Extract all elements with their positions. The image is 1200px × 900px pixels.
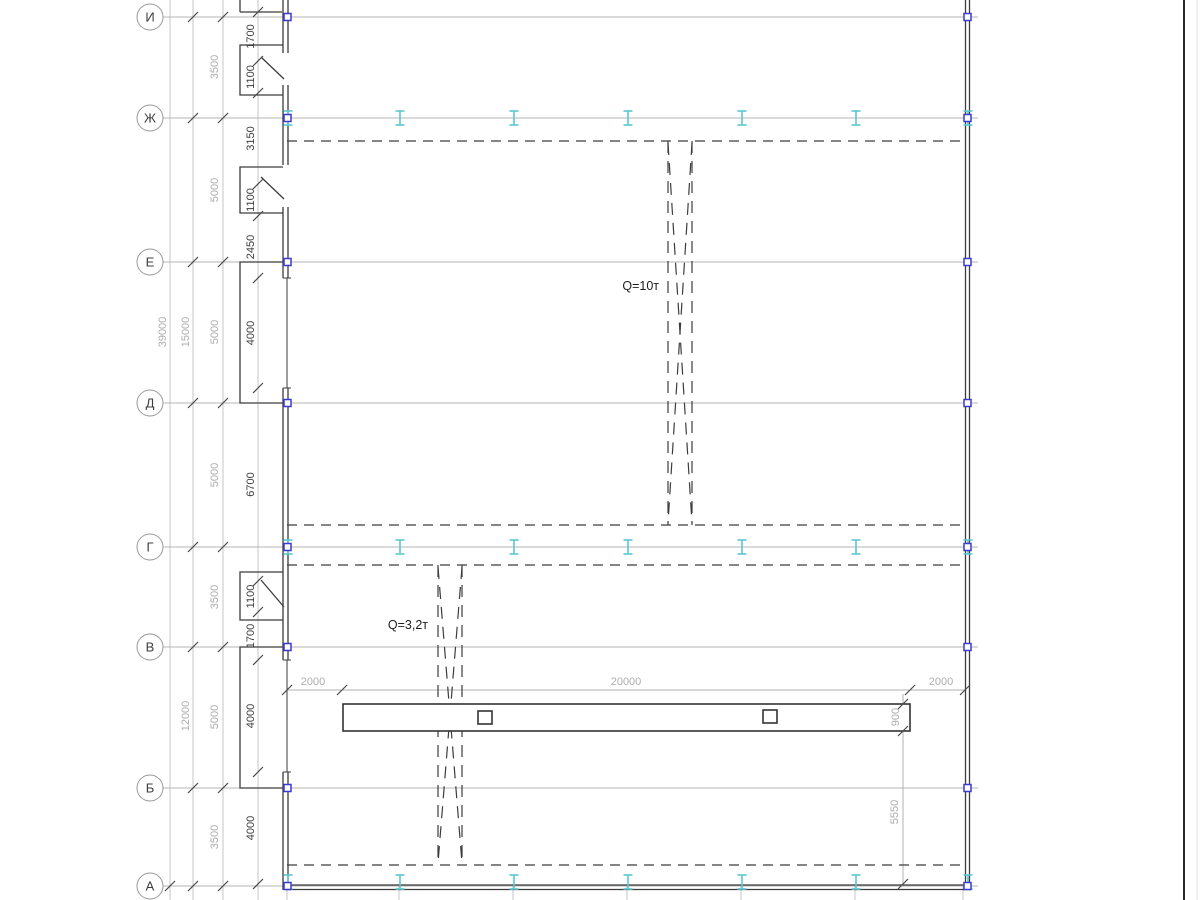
column-marker [284, 259, 291, 266]
axis-label: И [145, 10, 154, 25]
dim-label: 4000 [245, 816, 257, 840]
column-marker [284, 400, 291, 407]
axis-label: Е [146, 255, 155, 270]
dim-label: Q=3,2т [388, 618, 428, 632]
axis-label: В [146, 640, 155, 655]
dim-label: 6700 [245, 472, 257, 496]
column-marker [964, 115, 971, 122]
dim-label: 5550 [889, 800, 901, 824]
dim-label: 4000 [245, 321, 257, 345]
column-marker [284, 544, 291, 551]
dim-label: 15000 [180, 317, 192, 348]
column-marker [284, 115, 291, 122]
dim-label: 5000 [209, 705, 221, 729]
monorail-trolley-1 [478, 711, 492, 724]
dim-label: 1700 [245, 624, 257, 648]
dim-label: Q=10т [622, 279, 659, 293]
column-marker [964, 14, 971, 21]
column-marker [964, 400, 971, 407]
steel-columns [284, 111, 973, 889]
dim-label: 5000 [209, 463, 221, 487]
dim-label: 900 [890, 708, 902, 726]
steel-column-icon [624, 875, 633, 889]
dim-label: 2450 [245, 235, 257, 259]
dim-label: 2000 [301, 676, 325, 688]
dim-label: 1100 [245, 188, 257, 212]
dim-label: 3500 [209, 825, 221, 849]
dim-label: 1100 [245, 65, 257, 89]
dim-label: 3500 [209, 55, 221, 79]
steel-column-icon [396, 875, 405, 889]
crane-runway-lines [287, 141, 965, 865]
dim-label: 2000 [929, 676, 953, 688]
dim-label: 5000 [209, 178, 221, 202]
niche-3-door-leaf [261, 580, 284, 607]
axis-label: Ж [144, 111, 156, 126]
axis-label: А [146, 879, 155, 894]
walls [240, 0, 971, 890]
column-marker [964, 644, 971, 651]
dim-label: 3150 [245, 126, 257, 150]
axis-center-lines [164, 17, 979, 886]
column-marker [284, 644, 291, 651]
cad-plan-canvas: ИЖЕДГВБА 3500500050005000350050003500150… [0, 0, 1200, 900]
column-marker [284, 785, 291, 792]
dim-label: 20000 [611, 676, 642, 688]
dim-label: 5000 [209, 320, 221, 344]
steel-column-icon [738, 875, 747, 889]
column-markers [284, 14, 971, 890]
monorail-beam [343, 704, 910, 731]
niche-top-cut [240, 0, 282, 12]
dim-label: 3500 [209, 585, 221, 609]
monorail-trolley-2 [763, 710, 777, 723]
dim-label: 12000 [180, 701, 192, 732]
dim-label: 39000 [157, 317, 169, 348]
monorail-beam-body [343, 704, 910, 731]
dim-label: 1700 [245, 24, 257, 48]
axis-label: Г [146, 540, 153, 555]
grid-lines [170, 0, 963, 900]
dimension-ticks [165, 7, 970, 891]
column-marker [964, 785, 971, 792]
dim-label: 1100 [245, 585, 257, 609]
column-marker [964, 544, 971, 551]
axis-label: Б [146, 781, 155, 796]
axis-bubbles: ИЖЕДГВБА [137, 4, 163, 899]
steel-column-icon [852, 875, 861, 889]
sheet-frame [1184, 0, 1197, 900]
column-marker [284, 14, 291, 21]
column-marker [284, 883, 291, 890]
steel-column-icon [510, 875, 519, 889]
crane-10t-outline [668, 141, 692, 525]
niche-1-door-leaf [261, 57, 284, 79]
axis-label: Д [146, 396, 155, 411]
column-marker [964, 883, 971, 890]
dim-label: 4000 [245, 704, 257, 728]
column-marker [964, 259, 971, 266]
niche-2-door-leaf [261, 177, 284, 199]
building-plan-drawing: ИЖЕДГВБА 3500500050005000350050003500150… [0, 0, 1200, 900]
